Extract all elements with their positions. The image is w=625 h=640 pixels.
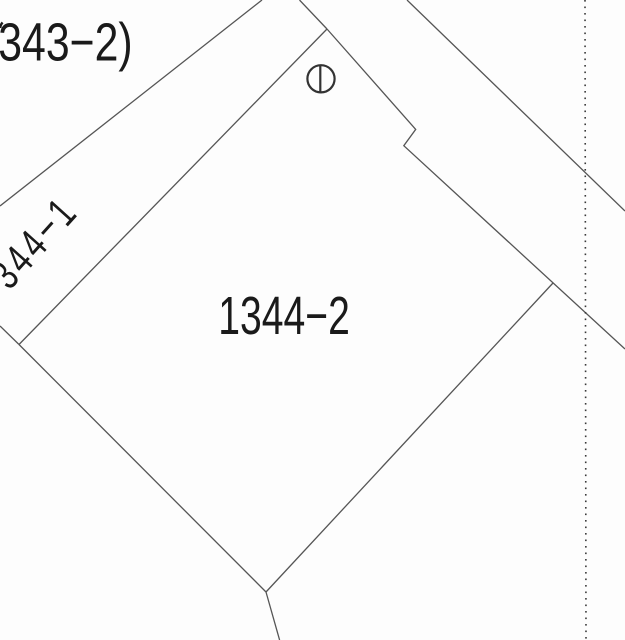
svg-text:(343−2): (343−2) (0, 13, 133, 73)
svg-text:344−1: 344−1 (0, 187, 87, 297)
svg-text:1344−2: 1344−2 (218, 286, 350, 345)
